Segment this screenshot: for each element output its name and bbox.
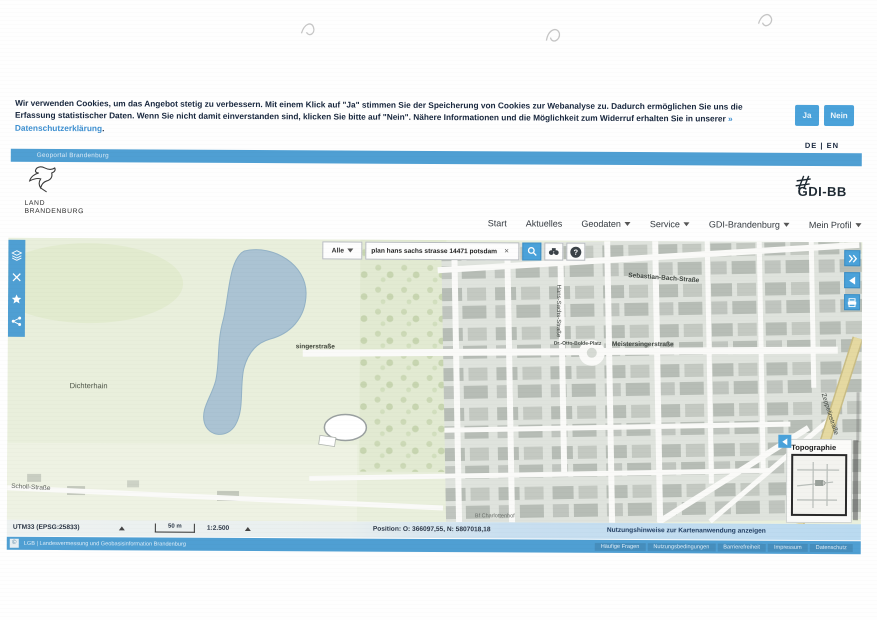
cookie-text: Wir verwenden Cookies, um das Angebot st… (15, 98, 743, 124)
usage-hint-link[interactable]: Nutzungshinweise zur Kartenanwendung anz… (607, 527, 766, 535)
chevron-left-icon (781, 437, 788, 445)
binoculars-icon (548, 248, 559, 256)
search-button[interactable] (522, 242, 541, 260)
logo-text-line2: BRANDENBURG (24, 208, 112, 217)
expand-panel-button[interactable] (844, 250, 860, 266)
cursor-position: Position: O: 366097,55, N: 5807018,18 (373, 526, 491, 534)
basemap-panel-toggle[interactable] (778, 435, 791, 448)
help-icon: ? (570, 246, 581, 257)
search-help-button[interactable]: ? (566, 243, 585, 261)
gdi-bb-logo: GDI-BB (798, 183, 868, 201)
chevron-down-icon (347, 249, 353, 253)
clear-search-icon[interactable]: × (504, 246, 509, 255)
footer-links: Häufige Fragen Nutzungsbedingungen Barri… (595, 542, 853, 551)
chevron-down-icon (855, 223, 861, 227)
footer-link-imprint[interactable]: Impressum (768, 543, 808, 551)
overview-map[interactable] (791, 454, 847, 516)
footer-link-faq[interactable]: Häufige Fragen (595, 542, 646, 550)
map-label: Meistersingerstraße (612, 341, 674, 348)
chevron-down-icon (625, 222, 631, 226)
crs-select[interactable]: UTM33 (EPSG:25833) (13, 524, 80, 531)
brandenburg-eagle-icon (23, 165, 65, 195)
parcel-search-button[interactable] (544, 243, 563, 261)
basemap-panel-title: Topographie (791, 443, 847, 452)
nav-item-start[interactable]: Start (488, 218, 507, 228)
footer-link-privacy[interactable]: Datenschutz (810, 543, 853, 551)
chevron-up-icon (119, 526, 125, 530)
chevron-left-icon (848, 276, 856, 285)
search-scope-select[interactable]: Alle (322, 241, 362, 259)
copyright-text: LGB | Landesvermessung und Geobasisinfor… (24, 540, 186, 547)
map-label: Dr.-Otto-Bolde-Platz (554, 341, 602, 347)
lang-de[interactable]: DE (805, 141, 817, 150)
map-label: singerstraße (296, 343, 335, 350)
footer-link-accessibility[interactable]: Barrierefreiheit (717, 543, 766, 551)
search-icon (527, 246, 537, 256)
tools-icon[interactable] (11, 272, 22, 283)
gdi-hash-icon (794, 175, 814, 193)
scale-select[interactable]: 1:2.500 (207, 525, 229, 532)
map-label: Dichterhain (70, 381, 108, 390)
cookie-text-suffix: . (102, 123, 104, 133)
print-icon (847, 298, 857, 307)
map-search-bar: Alle × ? (322, 241, 585, 260)
layers-icon[interactable] (11, 249, 22, 260)
chevron-down-icon (684, 222, 690, 226)
cookie-banner: Wir verwenden Cookies, um das Angebot st… (15, 97, 773, 138)
lang-en[interactable]: EN (827, 141, 839, 150)
land-brandenburg-logo[interactable]: LAND BRANDENBURG (22, 165, 112, 217)
nav-item-gdi-brandenburg[interactable]: GDI-Brandenburg (709, 219, 790, 229)
footer-link-terms[interactable]: Nutzungsbedingungen (647, 543, 715, 551)
map-viewport[interactable]: Dichterhain Scholl-Straße singerstraße D… (7, 238, 862, 524)
map-tool-strip (8, 240, 26, 337)
portal-top-bar: Geoportal Brandenburg (11, 149, 862, 166)
scale-bar-label: 50 m (168, 524, 182, 530)
favorites-star-icon[interactable] (11, 294, 22, 305)
nav-item-geodaten[interactable]: Geodaten (581, 219, 631, 229)
map-canvas[interactable]: Dichterhain Scholl-Straße singerstraße D… (7, 238, 862, 524)
chevron-up-icon (245, 527, 251, 531)
copyright-symbol: © (10, 539, 19, 548)
overview-map-preview (793, 456, 845, 514)
cookie-accept-button[interactable]: Ja (795, 105, 819, 126)
double-chevron-right-icon (848, 254, 857, 263)
basemap-panel: Topographie (786, 439, 852, 523)
cookie-decline-button[interactable]: Nein (824, 105, 854, 126)
share-icon[interactable] (11, 316, 22, 327)
portal-top-bar-label: Geoportal Brandenburg (37, 152, 109, 159)
language-switcher: DE | EN (805, 141, 839, 150)
nav-item-service[interactable]: Service (650, 219, 690, 229)
lang-divider: | (820, 141, 823, 150)
map-label: Bf Charlottenhof (475, 513, 515, 519)
map-label: Hans-Sachs-Straße (555, 285, 561, 338)
chevron-down-icon (784, 223, 790, 227)
collapse-panel-button[interactable] (844, 272, 860, 288)
main-navigation: Start Aktuelles Geodaten Service GDI-Bra… (520, 218, 861, 230)
search-input[interactable] (365, 242, 519, 261)
print-button[interactable] (844, 294, 860, 310)
scale-bar: 50 m (155, 524, 195, 533)
nav-item-aktuelles[interactable]: Aktuelles (526, 218, 563, 228)
nav-item-mein-profil[interactable]: Mein Profil (809, 220, 862, 230)
